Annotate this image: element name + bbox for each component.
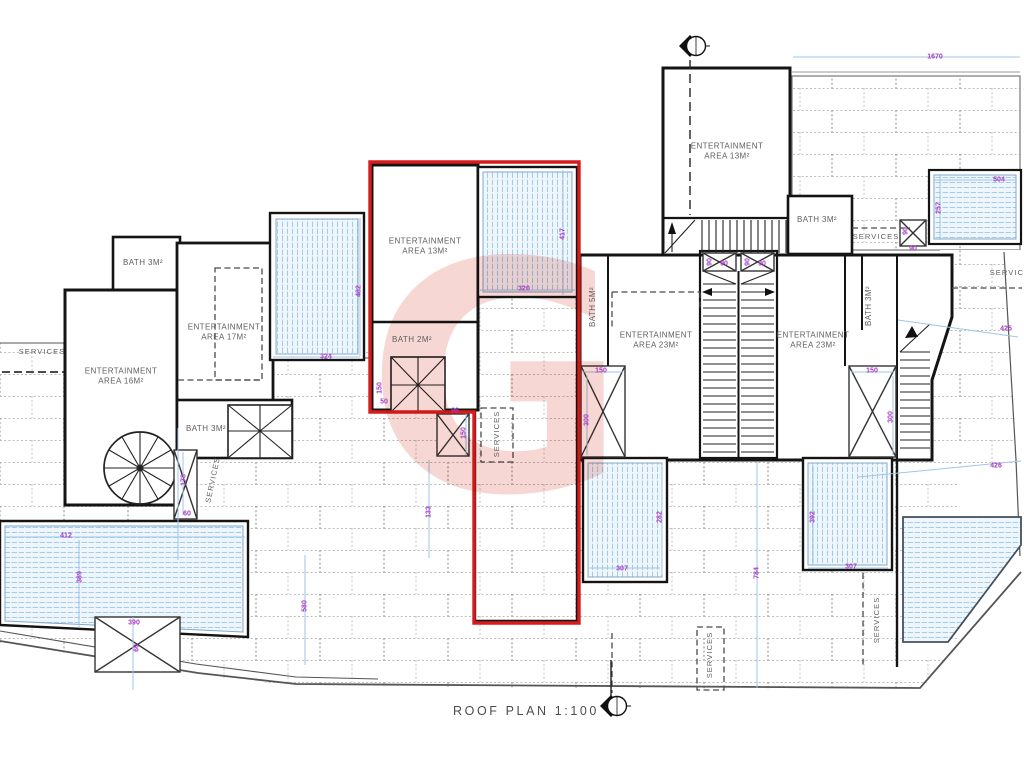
plan-title: ROOF PLAN 1:100 — [453, 704, 599, 718]
roof-plan-drawing: G ENTERTAINMENT AREA 16M²ENTERTAINMENT A… — [0, 0, 1024, 768]
plan-linework — [0, 0, 1024, 768]
section-marker-top — [679, 35, 710, 57]
